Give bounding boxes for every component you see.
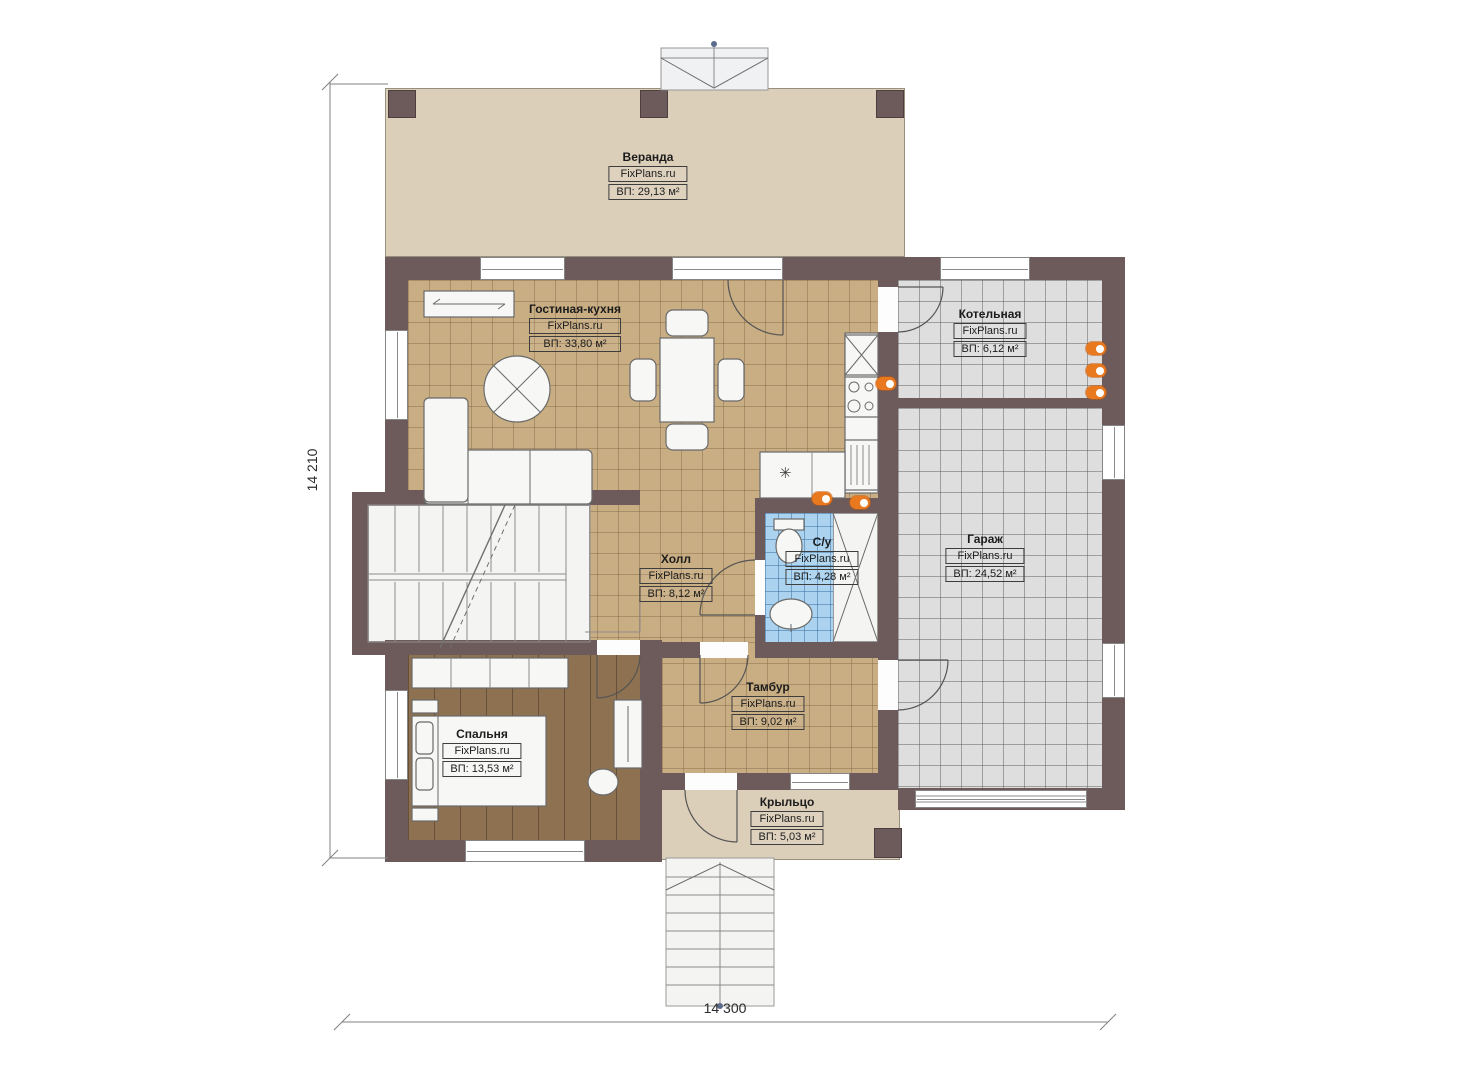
pillow <box>416 722 433 754</box>
door-arc-garage <box>898 660 948 710</box>
room-name: Крыльцо <box>750 795 823 809</box>
door-arc-front-entrance <box>685 790 737 842</box>
watermark: FixPlans.ru <box>608 166 687 182</box>
pillow <box>416 758 433 790</box>
watermark: FixPlans.ru <box>529 318 621 334</box>
room-name: Веранда <box>608 150 687 164</box>
fridge-snowflake-icon: ✳ <box>779 464 792 482</box>
dimension-width-label: 14 300 <box>704 1000 747 1016</box>
watermark: FixPlans.ru <box>953 323 1026 339</box>
room-label-veranda: Веранда FixPlans.ru ВП: 29,13 м² <box>608 150 687 200</box>
room-name: Тамбур <box>731 680 804 694</box>
floor-plan: ✳ Веранда FixPlans.ru ВП: 29,13 м² Гости… <box>0 0 1474 1080</box>
nightstand <box>412 700 438 713</box>
room-name: Гостиная-кухня <box>529 302 621 316</box>
radiator-icon <box>812 492 832 505</box>
room-area: ВП: 4,28 м² <box>785 569 858 585</box>
watermark: FixPlans.ru <box>945 548 1024 564</box>
room-area: ВП: 9,02 м² <box>731 714 804 730</box>
boiler-equipment-icon <box>1086 364 1106 377</box>
dining-chair <box>718 359 744 401</box>
toilet-tank <box>774 519 804 530</box>
dining-chair <box>666 310 708 336</box>
room-label-vestibule: Тамбур FixPlans.ru ВП: 9,02 м² <box>731 680 804 730</box>
desk-chair <box>588 769 618 795</box>
room-area: ВП: 29,13 м² <box>608 184 687 200</box>
boiler-equipment-icon <box>1086 386 1106 399</box>
door-arc-boiler <box>898 287 943 332</box>
boiler-equipment-icon <box>1086 342 1106 355</box>
nightstand <box>412 808 438 821</box>
room-area: ВП: 6,12 м² <box>953 341 1026 357</box>
radiator-icon <box>850 496 870 509</box>
sofa-chaise <box>424 398 468 502</box>
room-area: ВП: 33,80 м² <box>529 336 621 352</box>
door-arc-veranda <box>728 280 783 335</box>
dimension-height-label: 14 210 <box>304 440 320 500</box>
room-name: Котельная <box>953 307 1026 321</box>
room-area: ВП: 5,03 м² <box>750 829 823 845</box>
dining-chair <box>630 359 656 401</box>
watermark: FixPlans.ru <box>785 551 858 567</box>
room-label-garage: Гараж FixPlans.ru ВП: 24,52 м² <box>945 532 1024 582</box>
garage-door-lines <box>915 796 1087 802</box>
watermark: FixPlans.ru <box>639 568 712 584</box>
room-label-bathroom: С/у FixPlans.ru ВП: 4,28 м² <box>785 535 858 585</box>
dining-chair <box>666 424 708 450</box>
room-name: С/у <box>785 535 858 549</box>
radiator-icon <box>876 377 896 390</box>
room-area: ВП: 13,53 м² <box>442 761 521 777</box>
fridge <box>760 452 845 498</box>
watermark: FixPlans.ru <box>442 743 521 759</box>
room-label-porch: Крыльцо FixPlans.ru ВП: 5,03 м² <box>750 795 823 845</box>
roof-gable-marker <box>661 41 768 90</box>
room-area: ВП: 8,12 м² <box>639 586 712 602</box>
watermark: FixPlans.ru <box>731 696 804 712</box>
dining-table <box>660 338 714 422</box>
plan-linework <box>0 0 1474 1080</box>
room-name: Спальня <box>442 727 521 741</box>
staircase <box>368 505 640 648</box>
kitchen-cabinet <box>845 440 878 490</box>
room-name: Гараж <box>945 532 1024 546</box>
room-label-living-kitchen: Гостиная-кухня FixPlans.ru ВП: 33,80 м² <box>529 302 621 352</box>
furniture-kitchen <box>760 333 878 498</box>
room-name: Холл <box>639 552 712 566</box>
room-label-boiler: Котельная FixPlans.ru ВП: 6,12 м² <box>953 307 1026 357</box>
room-area: ВП: 24,52 м² <box>945 566 1024 582</box>
room-label-bedroom: Спальня FixPlans.ru ВП: 13,53 м² <box>442 727 521 777</box>
room-label-hall: Холл FixPlans.ru ВП: 8,12 м² <box>639 552 712 602</box>
door-arc-bedroom <box>597 655 640 698</box>
watermark: FixPlans.ru <box>750 811 823 827</box>
porch-steps <box>666 858 774 1009</box>
